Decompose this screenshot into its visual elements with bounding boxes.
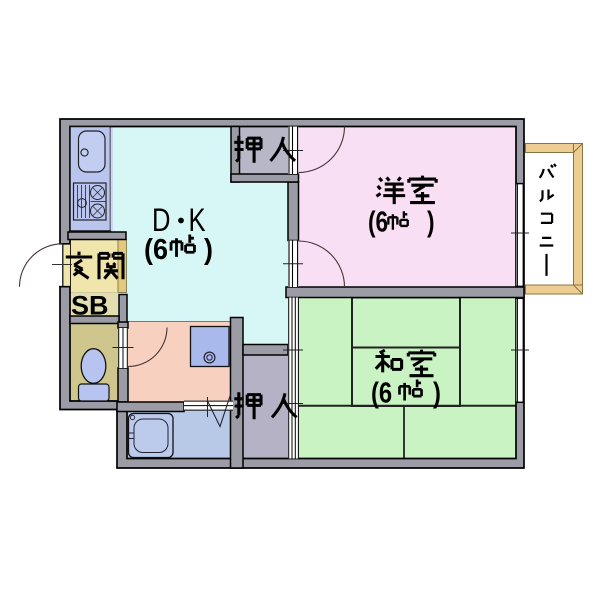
svg-text:): ) [204,233,213,265]
svg-text:): ) [433,376,441,409]
svg-text:(6: (6 [368,205,388,238]
svg-text:(6: (6 [144,233,168,265]
svg-text:(6: (6 [371,376,392,409]
svg-text:K: K [189,203,206,238]
svg-text:): ) [427,205,435,238]
svg-text:SB: SB [71,291,109,321]
